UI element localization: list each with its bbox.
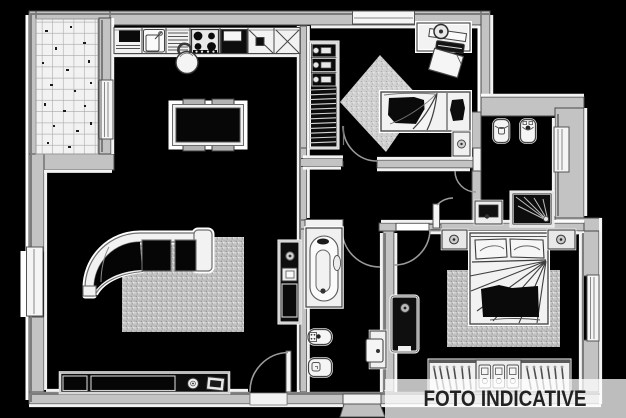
- svg-text:FOTO INDICATIVE: FOTO INDICATIVE: [424, 386, 587, 411]
